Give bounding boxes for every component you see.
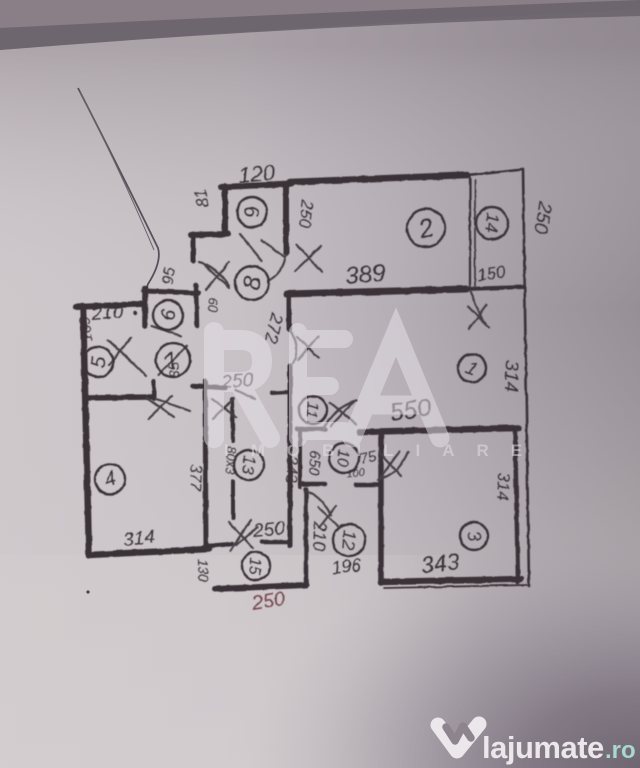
svg-text:377: 377 (186, 464, 204, 492)
svg-text:85: 85 (165, 361, 182, 378)
svg-text:IMOBILIARE: IMOBILIARE (224, 441, 544, 460)
svg-text:.ro: .ro (605, 737, 636, 764)
svg-text:343: 343 (282, 456, 300, 483)
svg-text:lajumate: lajumate (482, 730, 604, 765)
svg-text:314: 314 (500, 360, 523, 393)
svg-text:120: 120 (237, 160, 277, 188)
svg-text:314: 314 (493, 472, 513, 501)
svg-text:95: 95 (160, 266, 179, 285)
svg-text:196: 196 (330, 555, 363, 578)
svg-text:60: 60 (205, 297, 221, 313)
svg-text:250: 250 (295, 198, 316, 229)
svg-text:210: 210 (309, 520, 330, 552)
svg-text:210: 210 (90, 302, 125, 325)
svg-text:14: 14 (481, 212, 503, 234)
svg-text:9: 9 (241, 205, 265, 219)
svg-text:250: 250 (252, 518, 287, 542)
svg-text:150: 150 (476, 262, 507, 285)
svg-text:12: 12 (338, 529, 360, 551)
svg-text:15: 15 (245, 556, 263, 575)
svg-text:169: 169 (76, 315, 96, 343)
svg-text:343: 343 (420, 548, 461, 578)
svg-text:81: 81 (191, 187, 213, 209)
svg-text:389: 389 (344, 260, 386, 290)
svg-text:314: 314 (122, 527, 156, 551)
svg-text:130: 130 (195, 558, 212, 582)
